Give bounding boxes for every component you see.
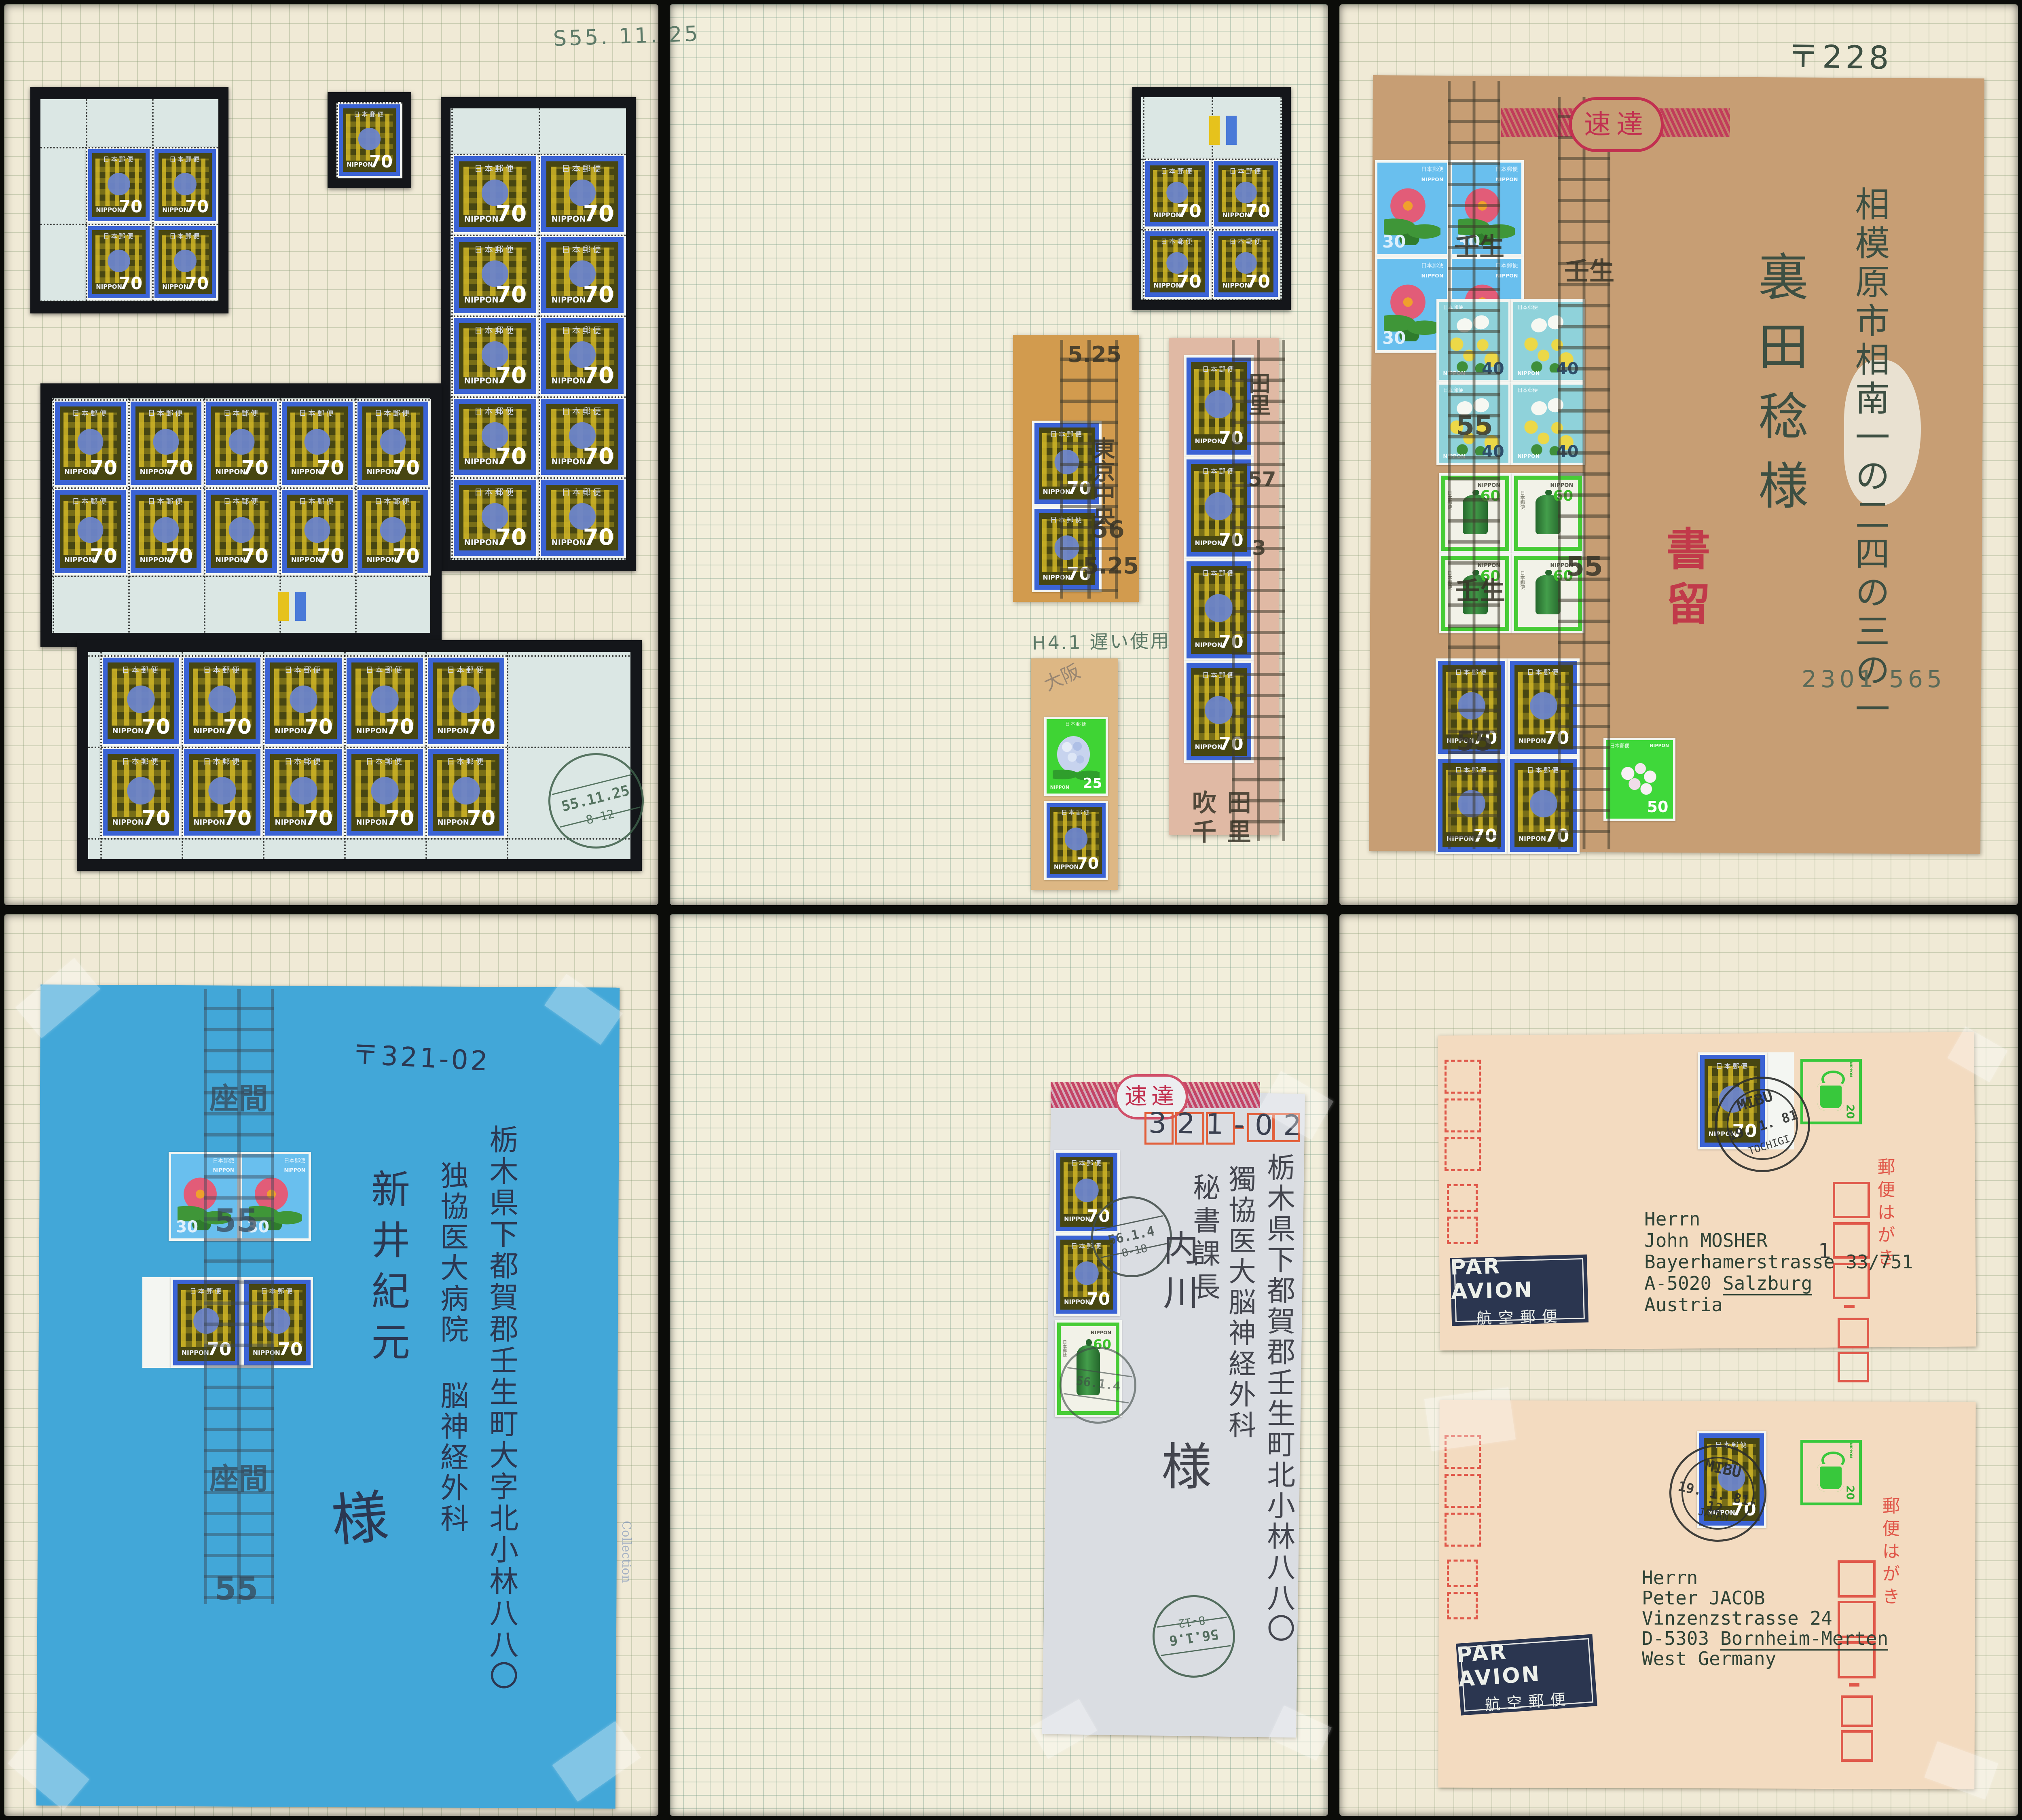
sorting-code: 2301 565 bbox=[1802, 667, 1946, 692]
cancel-place-col: 田里 bbox=[1246, 372, 1269, 416]
stamp-30: 日本郵便NIPPON30 bbox=[1375, 160, 1449, 256]
stamp-ink: 日本郵便NIPPON70 bbox=[1145, 161, 1209, 226]
stamp-value: 70 bbox=[317, 458, 344, 478]
stamp-inscription: 日本郵便 bbox=[1520, 491, 1525, 509]
stamp-country: NIPPON bbox=[1849, 1443, 1852, 1458]
stamp-70: 日本郵便NIPPON70 bbox=[100, 655, 182, 747]
stamp-70: 日本郵便NIPPON70 bbox=[451, 477, 539, 558]
stamp-value: 70 bbox=[393, 546, 420, 566]
stamp-inscription: 日本郵便 bbox=[1610, 743, 1629, 748]
stamp-sheet: 日本郵便NIPPON70日本郵便NIPPON70日本郵便NIPPON70日本郵便… bbox=[88, 652, 630, 859]
stamp-inscription: 日本郵便 bbox=[459, 165, 531, 173]
stamp-ink: 日本郵便NIPPON70 bbox=[454, 156, 536, 232]
cancel-number: 55 bbox=[214, 1205, 258, 1237]
postal-code-box bbox=[1445, 1513, 1481, 1547]
registered-marking: 書留 bbox=[1660, 526, 1708, 712]
addressee-column: 新井紀元 bbox=[366, 1169, 408, 1533]
stamp-70: 日本郵便NIPPON70 bbox=[86, 224, 152, 301]
stamp-country: NIPPON bbox=[551, 215, 586, 223]
stamp-inscription: 日本郵便 bbox=[1705, 1063, 1760, 1070]
stamp-ink: 日本郵便NIPPON70 bbox=[347, 749, 423, 836]
par-avion-text: PAR AVION bbox=[1450, 1252, 1588, 1304]
stamp-country: NIPPON bbox=[275, 819, 307, 826]
stamp-inscription: 日本郵便 bbox=[135, 410, 197, 417]
stamp-inscription: 日本郵便 bbox=[1050, 810, 1102, 816]
stamp-country: NIPPON bbox=[162, 207, 188, 214]
color-registration-bar bbox=[1209, 116, 1220, 145]
stamp-value: 70 bbox=[317, 546, 344, 566]
perforation-line bbox=[402, 102, 404, 178]
stamp-70: 日本郵便NIPPON70 bbox=[86, 147, 152, 224]
cancel-number: 55 bbox=[1566, 553, 1603, 580]
stamp-country: NIPPON bbox=[464, 215, 498, 223]
perforation-line bbox=[626, 108, 628, 560]
stamp-inscription: 日本郵便 bbox=[546, 165, 618, 173]
perforation-line bbox=[451, 396, 626, 398]
cancel-number: 3 bbox=[1252, 538, 1266, 558]
address-column: 獨協医大脳神経外科 bbox=[1225, 1165, 1254, 1569]
stamp-70: 日本郵便NIPPON70 bbox=[451, 315, 539, 396]
stamp-70: 日本郵便NIPPON70 bbox=[263, 655, 344, 747]
stamp-inscription: 日本郵便 bbox=[546, 326, 618, 335]
perforation-line bbox=[1141, 229, 1282, 231]
stamp-value: 70 bbox=[90, 546, 117, 566]
stamp-ink: NIPPON20 bbox=[1800, 1440, 1862, 1505]
stamp-inscription: 日本郵便 bbox=[60, 410, 121, 417]
stamp-inscription: 日本郵便 bbox=[287, 498, 348, 506]
stamp-ink: 日本郵便NIPPON70 bbox=[206, 402, 277, 485]
stamp-inscription: 日本郵便 bbox=[546, 245, 618, 254]
perforation-line bbox=[431, 398, 432, 633]
stamp-70: 日本郵便NIPPON70 bbox=[1212, 159, 1280, 229]
stamp-value: 70 bbox=[142, 717, 170, 737]
stamp-inscription: 日本郵便 bbox=[159, 233, 212, 240]
stamp-country: NIPPON bbox=[1050, 785, 1069, 790]
stamp-70: 日本郵便NIPPON70 bbox=[1143, 159, 1212, 229]
stamp-ink: 日本郵便NIPPON70 bbox=[541, 237, 624, 313]
par-avion-label: PAR AVION 航空郵便 bbox=[1450, 1255, 1588, 1326]
postal-code-box bbox=[1445, 1060, 1481, 1094]
stamp-ink: 日本郵便NIPPON70 bbox=[428, 658, 504, 744]
stamp-ink: 日本郵便NIPPON70 bbox=[206, 490, 277, 573]
stamp-value: 70 bbox=[1177, 203, 1201, 220]
stamp-inscription: 日本郵便 bbox=[1150, 168, 1205, 175]
address-line: Vinzenzstrasse 24 bbox=[1642, 1608, 1888, 1628]
stamp-country: NIPPON bbox=[1091, 1331, 1111, 1335]
stamp-value: 70 bbox=[1177, 273, 1201, 291]
express-marking-capsule: 速達 bbox=[1569, 97, 1664, 152]
stamp-ink: 日本郵便NIPPON25 bbox=[1047, 719, 1106, 794]
typed-address: Herrn John MOSHER Bayerhamerstrasse 33/7… bbox=[1644, 1208, 1913, 1316]
airmail-kanji: 航空郵便 bbox=[1476, 1304, 1564, 1328]
postal-code-box bbox=[1445, 1474, 1481, 1508]
stamp-country: NIPPON bbox=[1421, 177, 1443, 182]
cancel-date: 5.25 bbox=[1083, 555, 1139, 578]
perforation-line bbox=[128, 398, 130, 633]
stamp-70: 日本郵便NIPPON70 bbox=[279, 399, 355, 487]
stamp-country: NIPPON bbox=[1195, 642, 1223, 649]
stamp-country: NIPPON bbox=[1849, 1062, 1852, 1077]
postal-code-box bbox=[1841, 1730, 1873, 1762]
stamp-value: 30 bbox=[1382, 233, 1406, 250]
stamp-mount: 日本郵便NIPPON70日本郵便NIPPON70日本郵便NIPPON70日本郵便… bbox=[441, 97, 636, 571]
selvage-tab bbox=[142, 1277, 171, 1368]
express-label: 速達 bbox=[1125, 1084, 1178, 1109]
stamp-ink: 日本郵便NIPPON70 bbox=[131, 490, 201, 573]
stamp-value: 70 bbox=[185, 275, 209, 292]
stamp-70: 日本郵便NIPPON70 bbox=[152, 147, 218, 224]
cancel-number: 55 bbox=[214, 1573, 258, 1605]
perforation-line bbox=[539, 108, 540, 560]
address-line: Peter JACOB bbox=[1642, 1588, 1888, 1608]
stamp-ink: 日本郵便NIPPON70 bbox=[1214, 161, 1278, 226]
stamp-70: 日本郵便NIPPON70 bbox=[336, 102, 402, 178]
stamp-ink: 日本郵便NIPPON70 bbox=[1214, 231, 1278, 297]
stamp-inscription: 日本郵便 bbox=[362, 498, 423, 506]
address-column: 相模原市相南一の二四の三の一 bbox=[1850, 186, 1888, 853]
stamp-country: NIPPON bbox=[1517, 454, 1540, 459]
stamp-sheet: 日本郵便NIPPON70日本郵便NIPPON70日本郵便NIPPON70日本郵便… bbox=[40, 99, 218, 301]
stamp-inscription: 日本郵便 bbox=[459, 407, 531, 416]
address-line: Herrn bbox=[1644, 1208, 1913, 1230]
perforation-line bbox=[336, 178, 402, 180]
stamp-inscription: 日本郵便 bbox=[60, 498, 121, 506]
stamp-sheet: 日本郵便NIPPON70日本郵便NIPPON70日本郵便NIPPON70日本郵便… bbox=[1141, 97, 1282, 300]
stamp-inscription: 日本郵便 bbox=[459, 245, 531, 254]
stamp-inscription: 日本郵便 bbox=[362, 410, 423, 417]
postal-code-box bbox=[1838, 1352, 1869, 1382]
stamp-inscription: 日本郵便 bbox=[546, 407, 618, 416]
stamp-25: 日本郵便NIPPON25 bbox=[1044, 717, 1108, 796]
perforation-line bbox=[53, 398, 54, 633]
stamp-70: 日本郵便NIPPON70 bbox=[1212, 229, 1280, 299]
stamp-ink: 日本郵便NIPPON70 bbox=[347, 658, 423, 744]
stamp-20: NIPPON20 bbox=[1800, 1440, 1862, 1505]
stamp-inscription: 日本郵便 bbox=[1421, 263, 1443, 269]
perforation-line bbox=[86, 99, 87, 301]
stamp-country: NIPPON bbox=[194, 819, 225, 826]
stamp-inscription: 日本郵便 bbox=[546, 488, 618, 497]
page-edge-text: Collection bbox=[619, 1521, 633, 1583]
stamp-country: NIPPON bbox=[1054, 864, 1079, 870]
perforation-line bbox=[52, 576, 430, 577]
par-avion-text: PAR AVION bbox=[1456, 1634, 1596, 1691]
stamp-inscription: 日本郵便 bbox=[1517, 305, 1538, 310]
stamp-sheet: 日本郵便NIPPON70日本郵便NIPPON70日本郵便NIPPON70日本郵便… bbox=[52, 398, 430, 633]
perforation-line bbox=[40, 224, 218, 225]
stamp-value: 70 bbox=[305, 808, 333, 829]
stamp-inscription: 日本郵便 bbox=[351, 758, 418, 766]
stamp-value: 70 bbox=[185, 198, 209, 215]
color-registration-bar bbox=[295, 592, 306, 621]
perforation-line bbox=[88, 655, 630, 657]
stamp-inscription: 日本郵便 bbox=[189, 667, 256, 674]
stamp-country: NIPPON bbox=[96, 207, 122, 214]
stamp-ink: 日本郵便NIPPON70 bbox=[154, 226, 216, 298]
stamp-ink: 日本郵便NIPPON30 bbox=[1377, 163, 1447, 254]
stamp-country: NIPPON bbox=[551, 296, 586, 304]
stamp-country: NIPPON bbox=[551, 539, 586, 547]
roller-cancel bbox=[1558, 97, 1610, 849]
address-line: Bayerhamerstrasse 33/751 bbox=[1644, 1251, 1913, 1273]
stamp-country: NIPPON bbox=[162, 284, 188, 290]
stamp-70: 日本郵便NIPPON70 bbox=[539, 396, 626, 477]
stamp-ink: 日本郵便NIPPON70 bbox=[282, 402, 353, 485]
stamp-70: 日本郵便NIPPON70 bbox=[425, 747, 507, 838]
cancel-number: 55 bbox=[1456, 413, 1493, 439]
stamp-mount: 日本郵便NIPPON70日本郵便NIPPON70日本郵便NIPPON70日本郵便… bbox=[40, 383, 442, 647]
stamp-country: NIPPON bbox=[284, 1168, 305, 1172]
stamp-value: 30 bbox=[176, 1219, 198, 1235]
stamp-ink: 日本郵便NIPPON70 bbox=[357, 490, 428, 573]
stamp-70: 日本郵便NIPPON70 bbox=[425, 655, 507, 747]
express-label: 速達 bbox=[1584, 110, 1649, 140]
stamp-sheet: 日本郵便NIPPON70 bbox=[336, 102, 402, 178]
stamp-inscription: 日本郵便 bbox=[108, 667, 174, 674]
stamp-country: NIPPON bbox=[1519, 738, 1546, 745]
stamp-value: 70 bbox=[241, 546, 269, 566]
postal-code-box bbox=[1445, 1098, 1481, 1132]
stamp-ink: 日本郵便NIPPON70 bbox=[88, 226, 150, 298]
stamp-country: NIPPON bbox=[356, 728, 388, 735]
stamp-ink: 日本郵便NIPPON70 bbox=[184, 749, 260, 836]
cancel-place: 壬生 bbox=[1455, 578, 1505, 603]
perforation-line bbox=[355, 398, 357, 633]
stamp-value: 70 bbox=[496, 526, 527, 548]
underlined-city: Salzburg bbox=[1723, 1272, 1813, 1295]
stamp-20: NIPPON20 bbox=[1800, 1059, 1862, 1124]
stamp-mount: 日本郵便NIPPON70日本郵便NIPPON70日本郵便NIPPON70日本郵便… bbox=[1132, 87, 1291, 310]
stamp-value: 70 bbox=[386, 717, 414, 737]
stamp-70: 日本郵便NIPPON70 bbox=[263, 747, 344, 838]
stamp-inscription: 日本郵便 bbox=[1062, 1340, 1066, 1357]
stamp-70: 日本郵便NIPPON70 bbox=[451, 154, 539, 235]
stamp-sheet: 日本郵便NIPPON70日本郵便NIPPON70日本郵便NIPPON70日本郵便… bbox=[451, 108, 626, 560]
stamp-ink: 日本郵便NIPPON70 bbox=[184, 658, 260, 744]
address-line: D-5303 Bornheim-Merten bbox=[1642, 1628, 1888, 1649]
stamp-inscription: 日本郵便 bbox=[270, 667, 337, 674]
perforation-line bbox=[1280, 97, 1282, 300]
stamp-70: 日本郵便NIPPON70 bbox=[1143, 229, 1212, 299]
perforation-line bbox=[40, 301, 218, 302]
perforation-line bbox=[425, 652, 427, 859]
perforation-line bbox=[100, 652, 102, 859]
perforation-line bbox=[507, 652, 508, 859]
stamp-inscription: 日本郵便 bbox=[433, 758, 499, 766]
stamp-ink: 日本郵便NIPPON70 bbox=[265, 749, 342, 836]
stamp-inscription: 日本郵便 bbox=[1047, 722, 1106, 726]
stamp-value: 70 bbox=[496, 445, 527, 468]
cancel-place: 壬生 bbox=[1564, 259, 1614, 284]
stamp-country: NIPPON bbox=[356, 819, 388, 826]
stamp-ink: 日本郵便NIPPON70 bbox=[541, 318, 624, 394]
stamp-value: 70 bbox=[583, 364, 614, 387]
color-registration-bar bbox=[278, 592, 289, 621]
stamp-inscription: 日本郵便 bbox=[189, 758, 256, 766]
stamp-country: NIPPON bbox=[464, 377, 498, 385]
stamp-inscription: 日本郵便 bbox=[108, 758, 174, 766]
stamp-70: 日本郵便NIPPON70 bbox=[539, 477, 626, 558]
stamp-ink: NIPPON20 bbox=[1800, 1059, 1862, 1124]
cancel-place: 千里 bbox=[1192, 820, 1262, 844]
stamp-value: 70 bbox=[583, 526, 614, 548]
perforation-line bbox=[344, 652, 346, 859]
stamp-value: 70 bbox=[583, 203, 614, 225]
address-line: West Germany bbox=[1642, 1649, 1888, 1669]
stamp-70: 日本郵便NIPPON70 bbox=[539, 315, 626, 396]
stamp-value: 70 bbox=[393, 458, 420, 478]
postal-code: 〒228 bbox=[1787, 40, 1892, 76]
perforation-line bbox=[336, 102, 402, 104]
honorific: 様 bbox=[1161, 1440, 1212, 1495]
stamp-70: 日本郵便NIPPON70 bbox=[355, 487, 431, 576]
stamp-70: 日本郵便NIPPON70 bbox=[204, 399, 279, 487]
postmark-date: 56.1.4 bbox=[1061, 1373, 1135, 1395]
stamp-mount: 日本郵便NIPPON70日本郵便NIPPON70日本郵便NIPPON70日本郵便… bbox=[77, 640, 642, 871]
stamp-70: 日本郵便NIPPON70 bbox=[451, 396, 539, 477]
perforation-line bbox=[451, 235, 626, 236]
stamp-ink: 日本郵便NIPPON70 bbox=[428, 749, 504, 836]
stamp-inscription: 日本郵便 bbox=[433, 667, 499, 674]
perforation-line bbox=[88, 747, 630, 748]
stamp-value: 70 bbox=[1087, 1291, 1110, 1308]
stamp-value: 70 bbox=[166, 458, 193, 478]
stamp-70: 日本郵便NIPPON70 bbox=[279, 487, 355, 576]
address-column: 栃木県下都賀郡壬生町大字北小林八八〇 bbox=[485, 1124, 517, 1796]
stamp-ink: 日本郵便NIPPON70 bbox=[339, 104, 400, 176]
stamp-70: 日本郵便NIPPON70 bbox=[451, 235, 539, 315]
album-scan: S55. 11. 25 55.11.25 8-12 5.25 東京中央 56 5… bbox=[0, 0, 2022, 1820]
stamp-inscription: 日本郵便 bbox=[211, 498, 272, 506]
stamp-value: 70 bbox=[241, 458, 269, 478]
stamp-country: NIPPON bbox=[1519, 836, 1546, 842]
stamp-70: 日本郵便NIPPON70 bbox=[53, 399, 128, 487]
stamp-country: NIPPON bbox=[112, 728, 144, 735]
stamp-70: 日本郵便NIPPON70 bbox=[53, 487, 128, 576]
perforation-line bbox=[52, 487, 430, 489]
stamp-70: 日本郵便NIPPON70 bbox=[182, 655, 263, 747]
stamp-inscription: 日本郵便 bbox=[459, 326, 531, 335]
stamp-ink: 日本郵便NIPPON70 bbox=[541, 480, 624, 556]
postal-code-box bbox=[1838, 1318, 1869, 1348]
cancel-number: 57 bbox=[1248, 469, 1276, 489]
stamp-ink: 日本郵便NIPPON70 bbox=[454, 399, 536, 475]
stamp-country: NIPPON bbox=[1195, 438, 1223, 445]
stamp-70: 日本郵便NIPPON70 bbox=[539, 154, 626, 235]
stamp-ink: 日本郵便NIPPON70 bbox=[541, 399, 624, 475]
honorific: 様 bbox=[329, 1486, 391, 1553]
stamp-country: NIPPON bbox=[1421, 273, 1443, 279]
addressee-column: 裏田稔様 bbox=[1751, 251, 1805, 777]
stamp-ink: 日本郵便NIPPON70 bbox=[357, 402, 428, 485]
perforation-line bbox=[263, 652, 264, 859]
stamp-ink: 日本郵便NIPPON70 bbox=[103, 658, 179, 744]
stamp-inscription: 日本郵便 bbox=[351, 667, 418, 674]
stamp-70: 日本郵便NIPPON70 bbox=[152, 224, 218, 301]
stamp-inscription: 日本郵便 bbox=[1517, 388, 1538, 393]
stamp-50: 日本郵便NIPPON50 bbox=[1603, 738, 1675, 821]
stamp-value: 70 bbox=[496, 284, 527, 306]
perforation-line bbox=[451, 477, 626, 479]
stamp-ink: 日本郵便NIPPON70 bbox=[1145, 231, 1209, 297]
stamp-country: NIPPON bbox=[96, 284, 122, 290]
date-annotation: S55. 11. 25 bbox=[553, 23, 700, 51]
stamp-inscription: 日本郵便 bbox=[270, 758, 337, 766]
address-line: John MOSHER bbox=[1644, 1230, 1913, 1251]
stamp-value: 70 bbox=[119, 275, 142, 292]
stamp-70: 日本郵便NIPPON70 bbox=[344, 747, 425, 838]
stamp-country: NIPPON bbox=[112, 819, 144, 826]
stamp-value: 70 bbox=[496, 364, 527, 387]
perforation-line bbox=[182, 652, 183, 859]
stamp-ink: 日本郵便NIPPON70 bbox=[454, 237, 536, 313]
stamp-70: 日本郵便NIPPON70 bbox=[1044, 801, 1108, 880]
stamp-inscription: 日本郵便 bbox=[1060, 1160, 1113, 1167]
stamp-value: 70 bbox=[166, 546, 193, 566]
perforation-line bbox=[40, 147, 218, 148]
stamp-value: 50 bbox=[1647, 799, 1669, 815]
stamp-value: 70 bbox=[119, 198, 142, 215]
stamp-inscription: 日本郵便 bbox=[459, 488, 531, 497]
stamp-country: NIPPON bbox=[464, 539, 498, 547]
cancel-place: 東京中央 bbox=[1089, 437, 1114, 527]
stamp-ink: 日本郵便NIPPON70 bbox=[55, 402, 126, 485]
stamp-value: 30 bbox=[1382, 330, 1406, 347]
stamp-inscription: 日本郵便 bbox=[92, 233, 146, 240]
stamp-mount: 日本郵便NIPPON70 bbox=[328, 92, 411, 188]
stamp-value: 70 bbox=[369, 153, 393, 170]
stamp-ink: 日本郵便NIPPON70 bbox=[131, 402, 201, 485]
stamp-ink: 日本郵便NIPPON70 bbox=[541, 156, 624, 232]
perforation-line bbox=[88, 838, 630, 840]
stamp-country: NIPPON bbox=[275, 728, 307, 735]
cancel-time: 5.25 bbox=[1068, 344, 1121, 366]
stamp-inscription: 日本郵便 bbox=[92, 157, 146, 163]
stamp-country: NIPPON bbox=[438, 819, 469, 826]
perforation-line bbox=[1143, 97, 1144, 300]
stamp-inscription: 日本郵便 bbox=[135, 498, 197, 506]
address-column: 栃木県下都賀郡壬生町北小林八八〇 bbox=[1263, 1153, 1294, 1691]
stamp-value: 70 bbox=[583, 445, 614, 468]
stamp-country: NIPPON bbox=[1195, 744, 1223, 751]
stamp-inscription: 日本郵便 bbox=[1218, 168, 1273, 175]
stamp-inscription: 日本郵便 bbox=[1150, 239, 1205, 245]
stamp-ink: 日本郵便NIPPON70 bbox=[55, 490, 126, 573]
postal-code-box bbox=[1841, 1695, 1873, 1727]
stamp-value: 70 bbox=[223, 717, 252, 737]
address-column: 独協医大病院 脳神経外科 bbox=[437, 1161, 467, 1727]
stamp-inscription: 日本郵便 bbox=[343, 112, 396, 118]
postal-code-box bbox=[1447, 1560, 1478, 1587]
postal-code-box bbox=[1447, 1184, 1478, 1212]
perforation-line bbox=[1141, 159, 1282, 160]
stamp-value: 20 bbox=[1844, 1486, 1855, 1500]
perforation-line bbox=[451, 315, 626, 317]
perforation-line bbox=[451, 154, 626, 155]
stamp-ink: 日本郵便NIPPON70 bbox=[265, 658, 342, 744]
stamp-country: NIPPON bbox=[464, 296, 498, 304]
stamp-country: NIPPON bbox=[1650, 743, 1669, 748]
stamp-value: 70 bbox=[496, 203, 527, 225]
stamp-mount: 日本郵便NIPPON70日本郵便NIPPON70日本郵便NIPPON70日本郵便… bbox=[30, 87, 228, 313]
stamp-country: NIPPON bbox=[1195, 540, 1223, 547]
stamp-country: NIPPON bbox=[194, 728, 225, 735]
stamp-value: 25 bbox=[1083, 777, 1102, 790]
stamp-value: 20 bbox=[1844, 1105, 1855, 1119]
address-line: Herrn bbox=[1642, 1568, 1888, 1588]
stamp-70: 日本郵便NIPPON70 bbox=[182, 747, 263, 838]
color-registration-bar bbox=[1226, 116, 1237, 145]
